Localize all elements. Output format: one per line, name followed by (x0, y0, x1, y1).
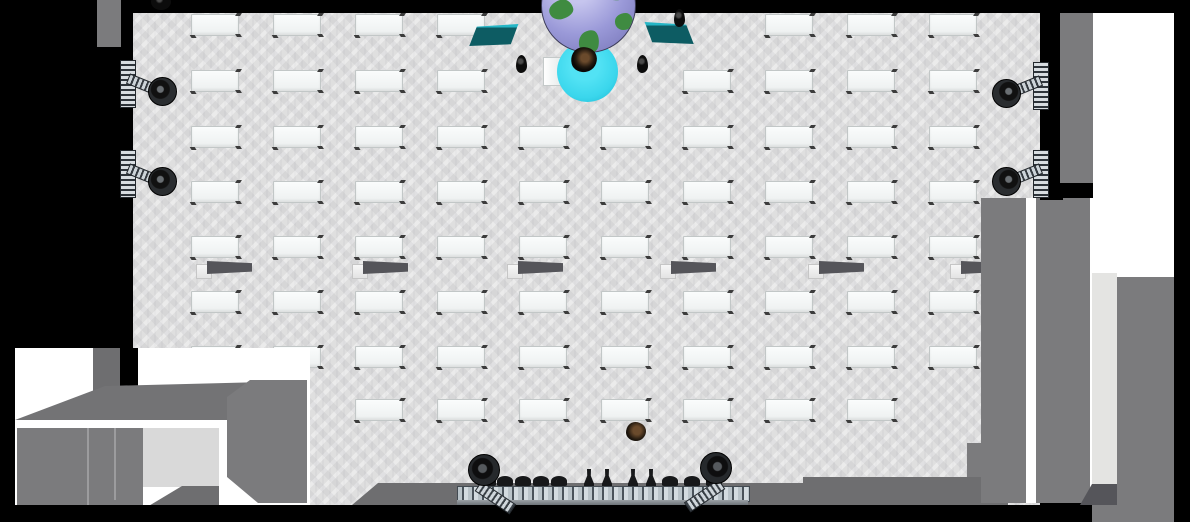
spotlight-head (148, 77, 177, 106)
wall-spotlight (995, 150, 1057, 198)
wall-spotlight (995, 62, 1057, 110)
wall-spotlights (0, 0, 1190, 522)
spotlight-head (992, 167, 1021, 196)
spotlight-head (992, 79, 1021, 108)
spotlight-head (148, 167, 177, 196)
wall-spotlight (112, 150, 174, 198)
wall-spotlight (112, 60, 174, 108)
scene-viewport[interactable] (0, 0, 1190, 522)
